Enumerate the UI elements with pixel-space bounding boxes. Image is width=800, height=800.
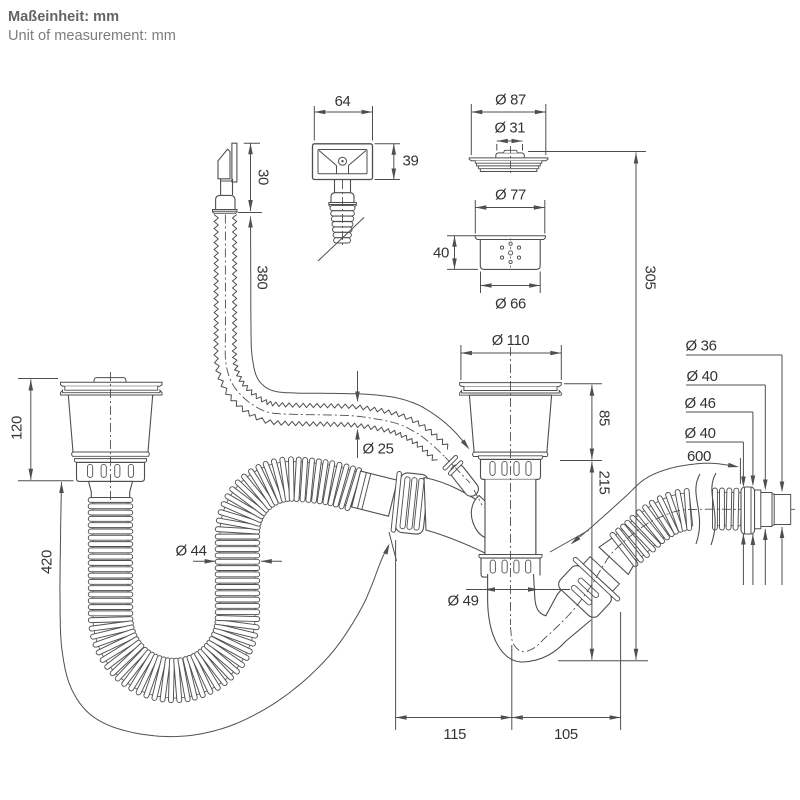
svg-text:115: 115 — [443, 727, 466, 743]
svg-text:Ø 40: Ø 40 — [686, 368, 717, 385]
svg-text:Ø 87: Ø 87 — [495, 93, 526, 109]
svg-text:Ø 25: Ø 25 — [362, 441, 393, 458]
svg-text:39: 39 — [403, 153, 419, 170]
svg-text:Unit of measurement: mm: Unit of measurement: mm — [8, 28, 176, 44]
svg-text:120: 120 — [9, 416, 26, 440]
svg-text:Ø 31: Ø 31 — [494, 121, 525, 137]
svg-text:600: 600 — [687, 448, 711, 465]
svg-text:Ø 44: Ø 44 — [175, 543, 206, 560]
svg-text:Ø 40: Ø 40 — [684, 425, 715, 442]
svg-text:215: 215 — [596, 471, 613, 495]
svg-text:105: 105 — [554, 727, 578, 743]
svg-text:305: 305 — [642, 266, 659, 290]
svg-text:30: 30 — [255, 169, 272, 185]
svg-text:420: 420 — [39, 550, 56, 574]
svg-text:Ø 49: Ø 49 — [447, 593, 478, 610]
svg-text:Ø 36: Ø 36 — [685, 338, 716, 355]
svg-text:64: 64 — [335, 94, 351, 110]
svg-text:Ø 77: Ø 77 — [495, 188, 526, 204]
svg-text:Ø 110: Ø 110 — [492, 333, 530, 349]
svg-text:Ø 46: Ø 46 — [684, 395, 715, 412]
svg-text:Maßeinheit: mm: Maßeinheit: mm — [8, 9, 119, 25]
svg-text:380: 380 — [254, 265, 271, 289]
svg-text:Ø 66: Ø 66 — [495, 297, 526, 313]
svg-text:85: 85 — [596, 410, 613, 426]
svg-text:40: 40 — [433, 245, 449, 262]
